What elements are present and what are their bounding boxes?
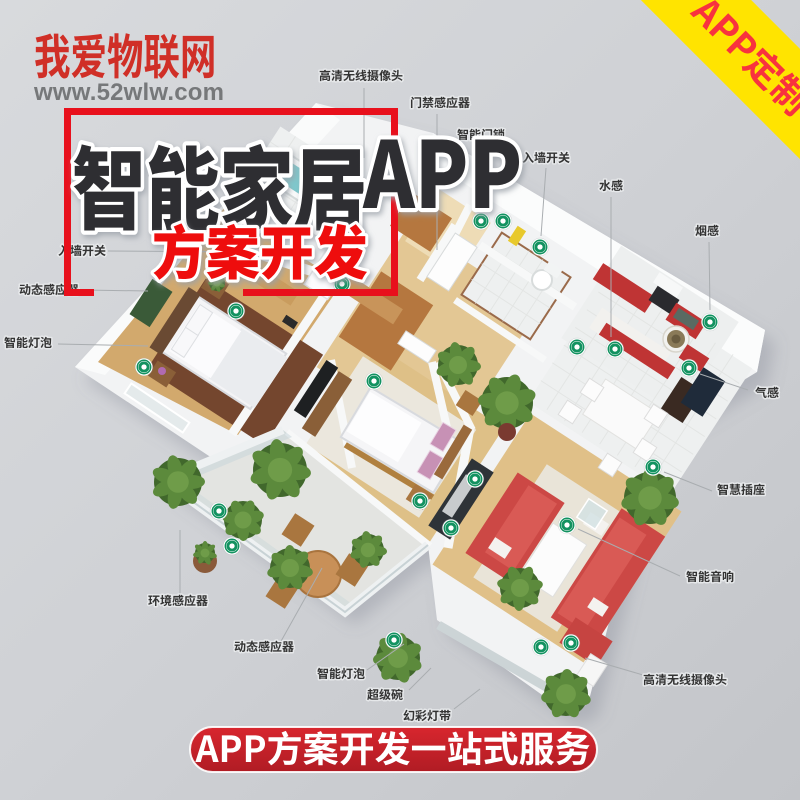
svg-text:www.52wlw.com: www.52wlw.com [33,79,224,106]
